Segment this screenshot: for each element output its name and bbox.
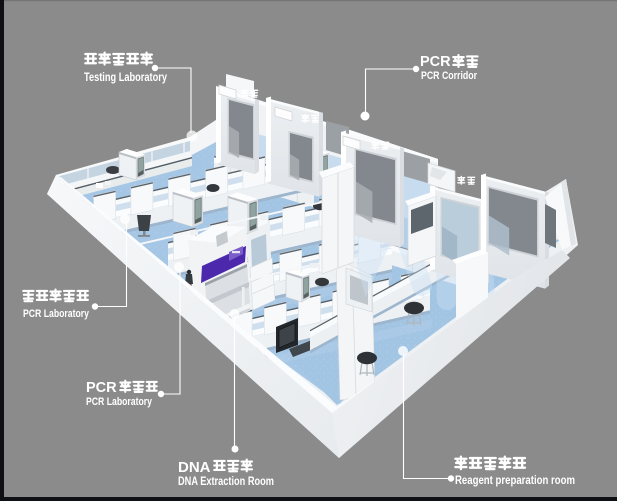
svg-text:Reagent preparation room: Reagent preparation room [455,475,575,487]
svg-text:DNA Extraction Room: DNA Extraction Room [178,476,274,488]
svg-text:DNA: DNA [178,459,211,476]
svg-text:PCR Laboratory: PCR Laboratory [86,396,153,408]
svg-text:PCR Corridor: PCR Corridor [421,70,478,82]
svg-text:Testing Laboratory: Testing Laboratory [84,70,167,84]
svg-text:PCR: PCR [420,54,451,70]
svg-text:PCR: PCR [86,380,117,396]
svg-text:PCR Laboratory: PCR Laboratory [23,308,90,320]
